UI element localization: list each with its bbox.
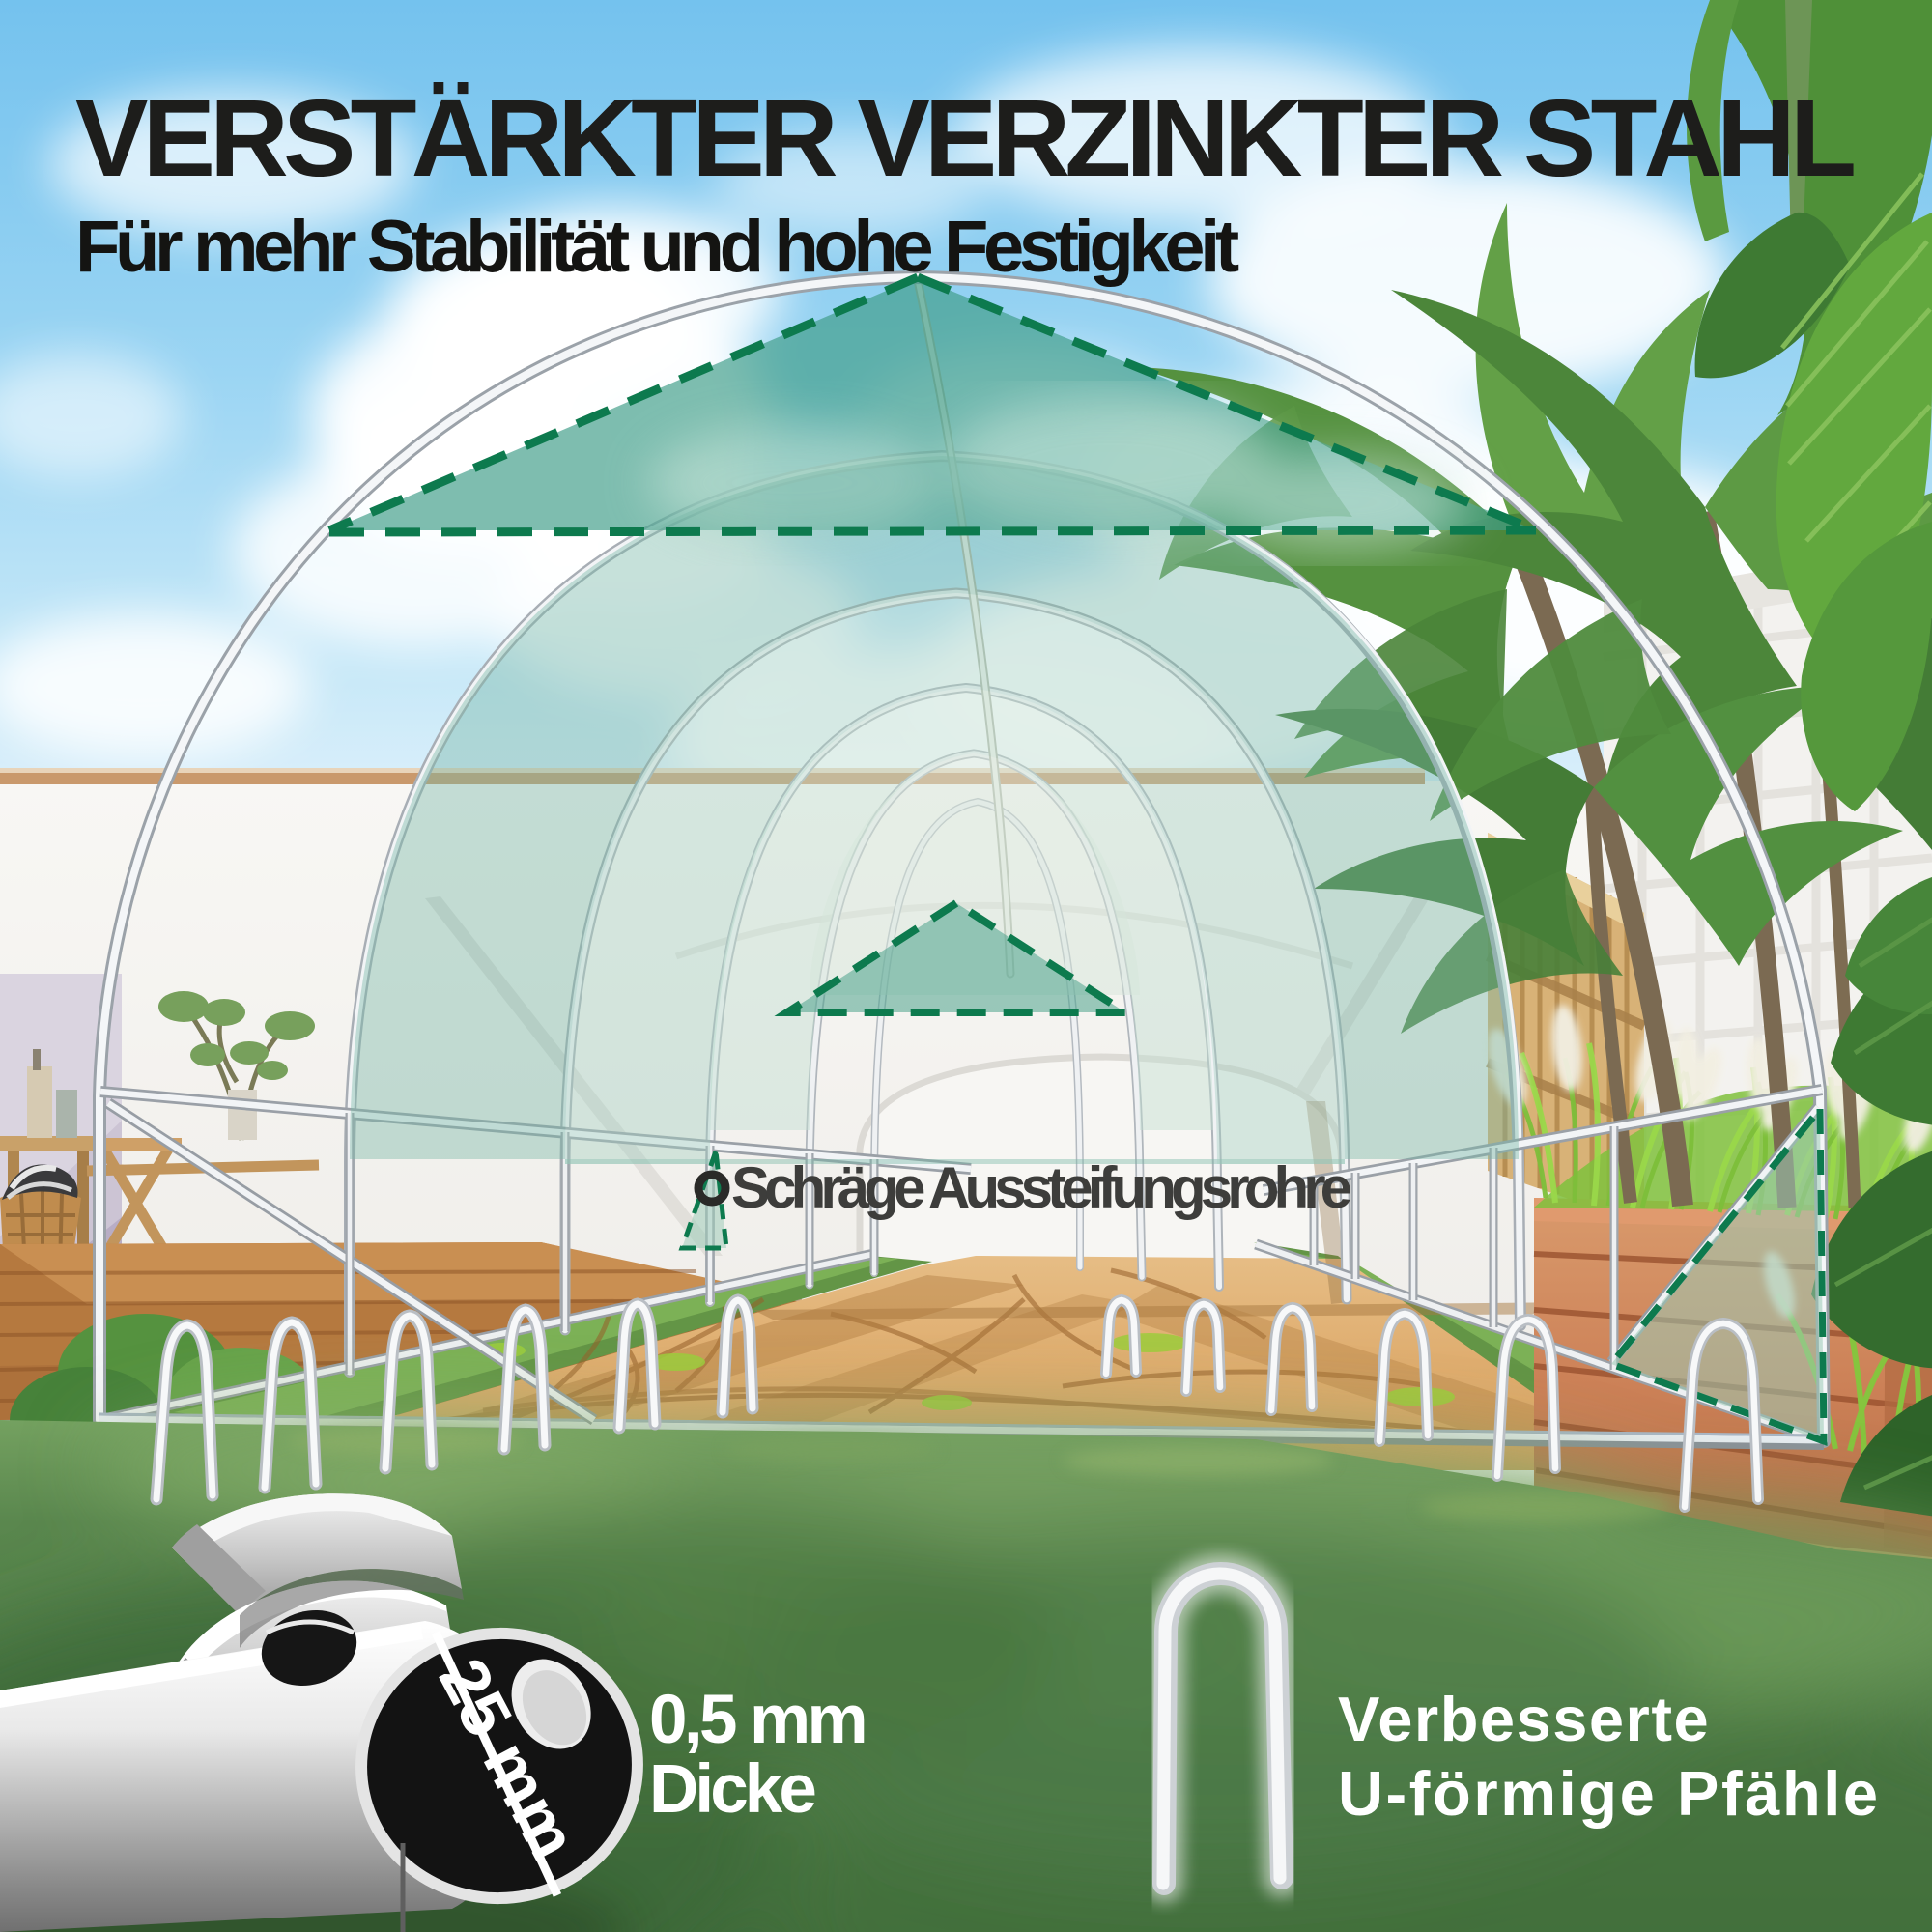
svg-text:0,5 mm: 0,5 mm bbox=[649, 1682, 865, 1758]
svg-text:Schräge Aussteifungsrohre: Schräge Aussteifungsrohre bbox=[731, 1155, 1351, 1220]
svg-text:Für mehr Stabilität und hohe F: Für mehr Stabilität und hohe Festigkeit bbox=[75, 206, 1239, 288]
svg-text:Dicke: Dicke bbox=[649, 1751, 815, 1828]
svg-text:VERSTÄRKTER VERZINKTER STAHL: VERSTÄRKTER VERZINKTER STAHL bbox=[75, 77, 1854, 199]
svg-text:U-förmige Pfähle: U-förmige Pfähle bbox=[1338, 1758, 1881, 1829]
svg-text:Verbesserte: Verbesserte bbox=[1338, 1684, 1710, 1754]
